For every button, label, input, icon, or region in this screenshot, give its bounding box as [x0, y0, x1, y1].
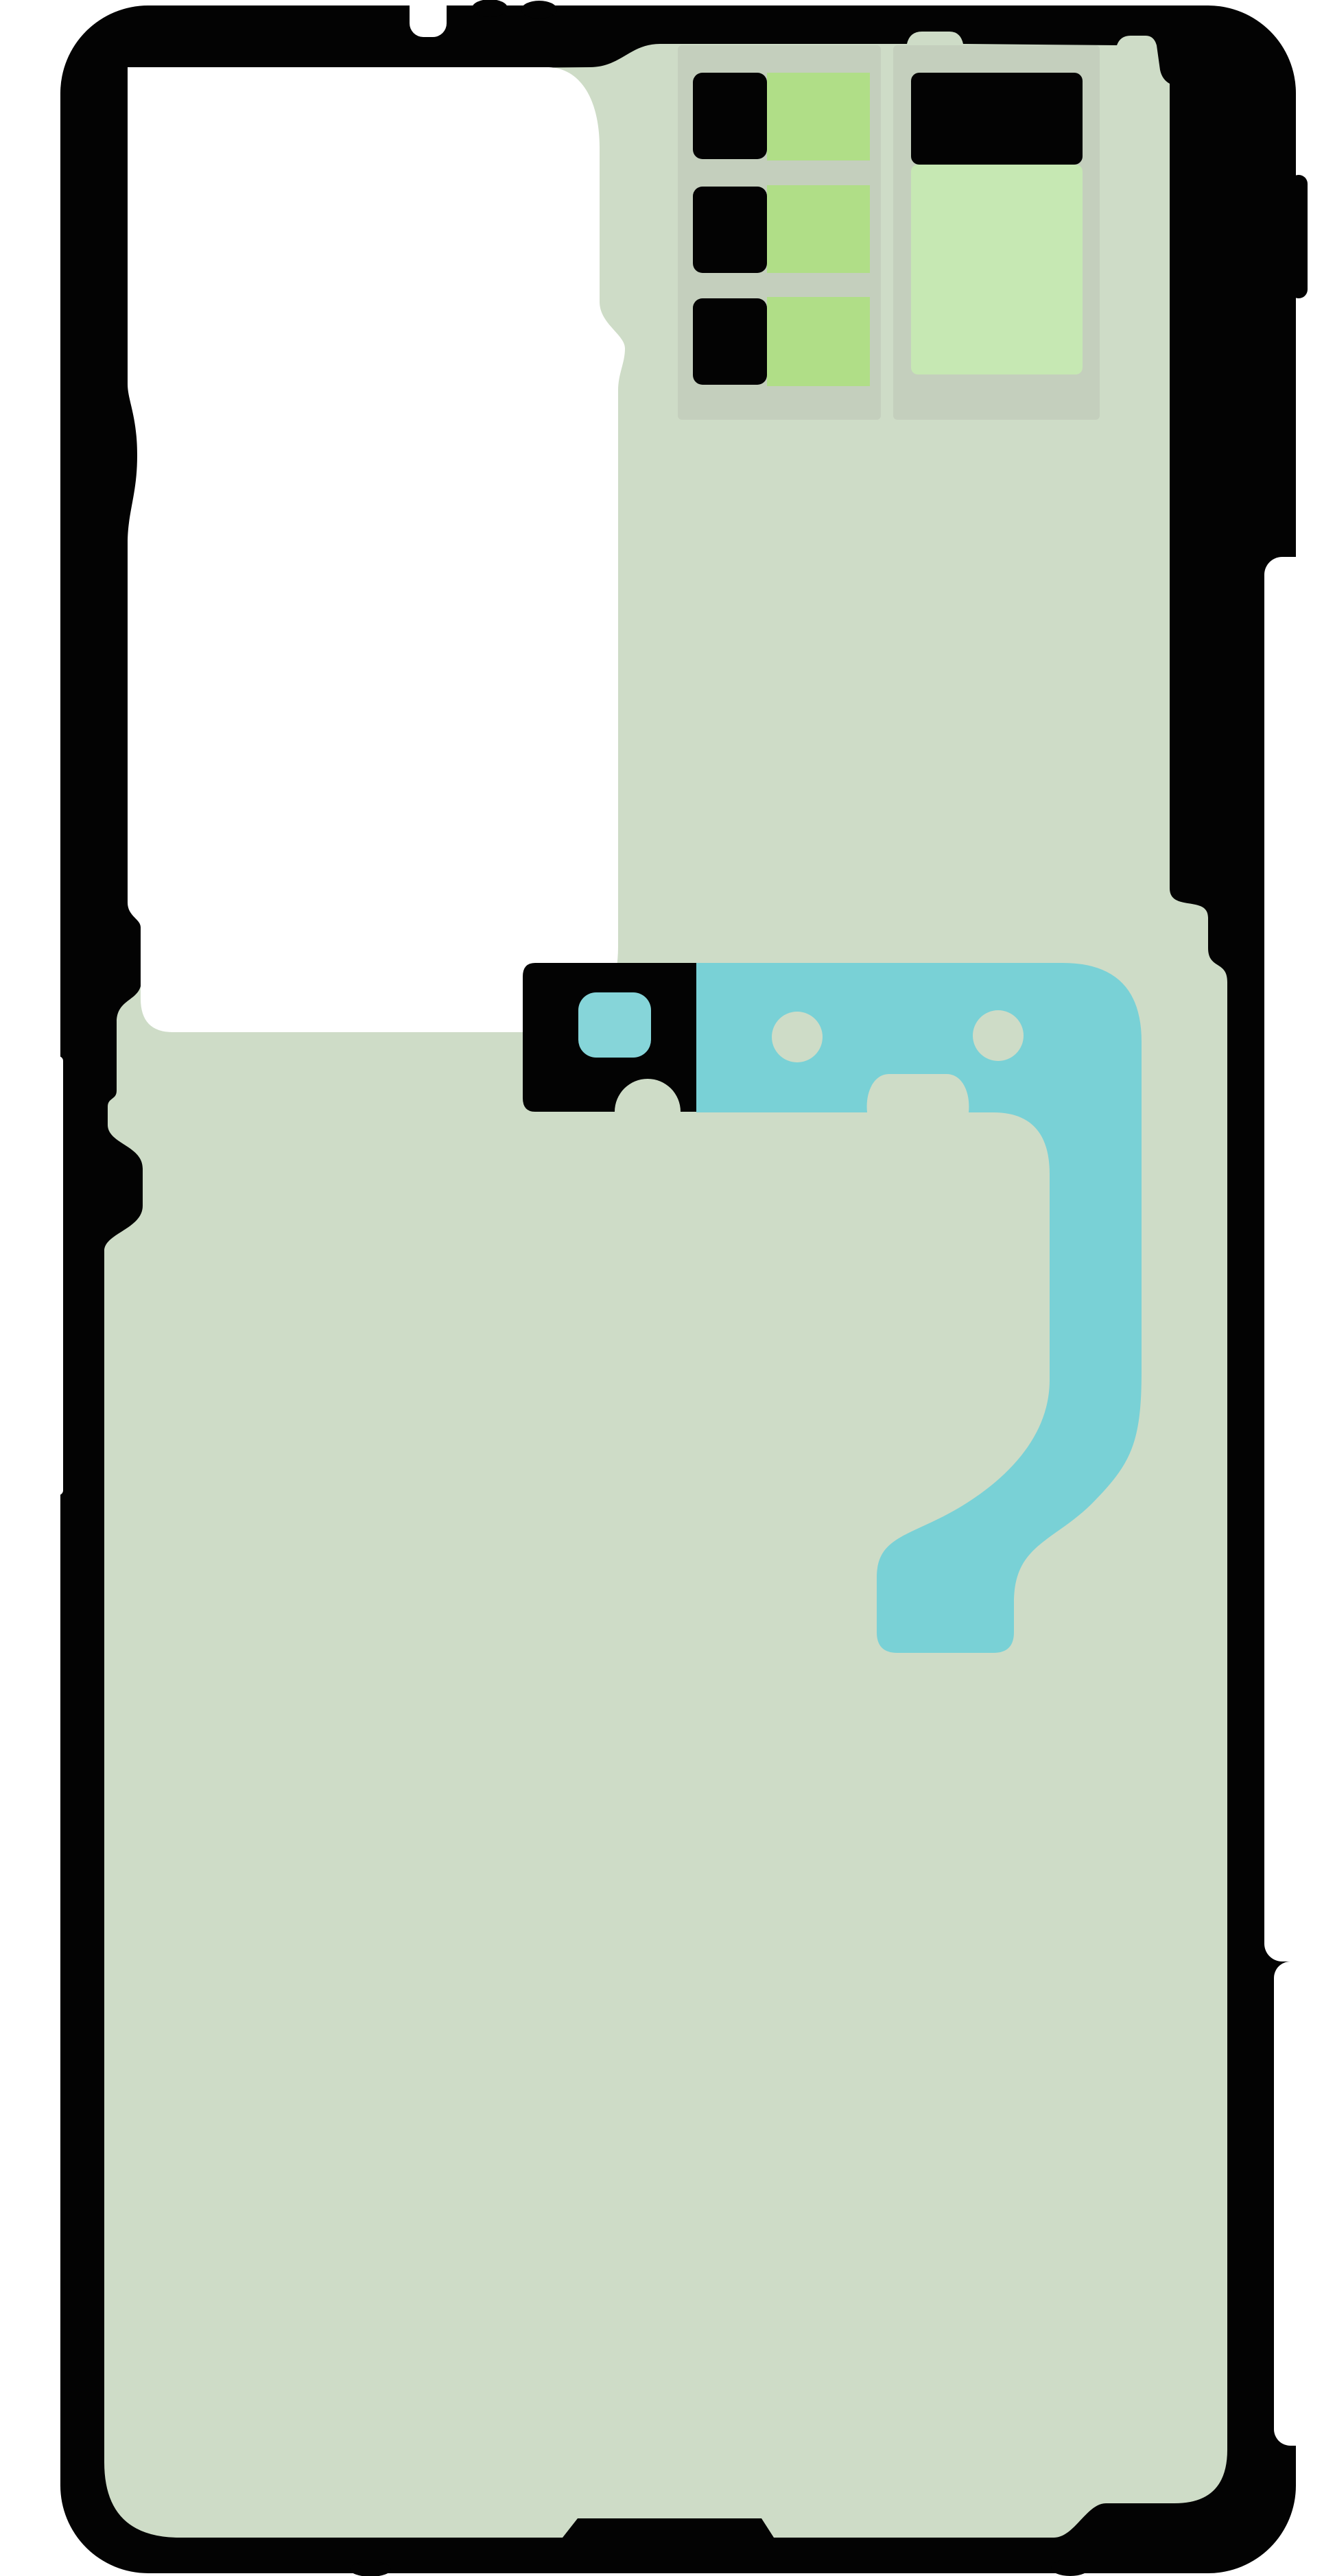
pull-tab-green-2: [767, 185, 870, 273]
outline-bump-top-2: [521, 1, 557, 19]
outline-bump-bottom-1: [350, 2562, 391, 2576]
right-sticker-panel: [893, 45, 1100, 420]
border-step-right-lower: [1274, 1961, 1335, 2446]
camera-cutout-area: [128, 67, 625, 1032]
outline-bulge-right: [1290, 175, 1308, 298]
outline-bump-top-1: [472, 0, 508, 17]
pull-tab-green-1: [767, 73, 870, 160]
pull-tab-black-1: [693, 73, 767, 159]
adhesive-sheet-illustration: [0, 0, 1335, 2576]
left-sticker-panel: [678, 45, 881, 420]
outline-bump-bottom-2: [1051, 2560, 1089, 2576]
pull-tab-black-2: [693, 187, 767, 273]
border-notch-top: [410, 0, 447, 37]
flex-hole-1: [772, 1012, 823, 1062]
flash-teal-pad: [578, 992, 651, 1058]
right-panel-black-pad: [911, 73, 1083, 165]
right-panel-pale-pad: [911, 165, 1083, 374]
pull-tab-green-3: [767, 297, 870, 386]
border-step-left: [54, 1056, 63, 1495]
sheet-canvas: [0, 0, 1335, 2576]
flex-hole-2: [973, 1010, 1024, 1061]
border-step-right-upper: [1264, 557, 1335, 1961]
pull-tab-black-3: [693, 298, 767, 385]
